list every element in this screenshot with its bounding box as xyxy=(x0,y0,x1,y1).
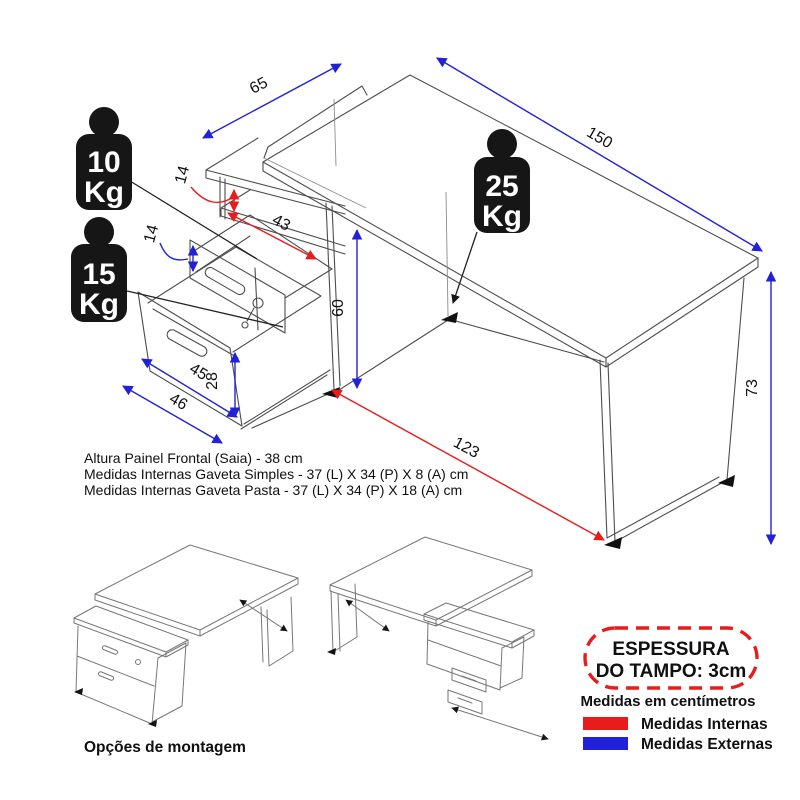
drawer-handle xyxy=(165,328,208,358)
mount-direction-arrow xyxy=(346,600,389,631)
dim-top-depth: 65 xyxy=(247,74,271,97)
right-side-panel xyxy=(600,278,744,542)
note-file-drawer-internal: Medidas Internas Gaveta Pasta - 37 (L) X… xyxy=(84,482,462,498)
internal-measures-label: Medidas Internas xyxy=(641,716,768,733)
key-lock xyxy=(136,660,141,665)
dim-line-top-depth xyxy=(203,64,341,138)
drawer-file xyxy=(138,247,330,429)
top-thickness-line1: ESPESSURA xyxy=(612,639,729,660)
diagram-canvas: 65 150 14 43 14 60 73 28 45 46 123 10 Kg… xyxy=(0,0,800,800)
top-thickness-line2: DO TAMPO: 3cm xyxy=(596,661,747,682)
drawer-pedestal xyxy=(206,138,604,428)
dim-pedestal-width: 46 xyxy=(166,390,190,414)
drawer-simple xyxy=(190,215,332,333)
drawer-handle xyxy=(203,266,246,297)
external-color-swatch xyxy=(583,737,628,750)
measurement-notes: Altura Painel Frontal (Saia) - 38 cm Med… xyxy=(84,450,468,498)
weight-unit: Kg xyxy=(482,200,522,233)
dim-niche-height: 14 xyxy=(172,164,193,186)
weight-unit: Kg xyxy=(79,288,119,321)
legend: ESPESSURA DO TAMPO: 3cm Medidas em centí… xyxy=(580,628,772,753)
weight-value: 15 xyxy=(82,258,115,291)
note-front-panel-height: Altura Painel Frontal (Saia) - 38 cm xyxy=(84,450,303,466)
key-lock xyxy=(242,298,263,328)
weight-unit: Kg xyxy=(84,176,124,209)
dim-line-knee-clearance xyxy=(332,390,604,540)
desk-feet xyxy=(322,312,735,549)
dim-leader-drawer-front-height xyxy=(160,243,188,260)
dim-niche-depth: 43 xyxy=(269,211,293,234)
dim-desk-height: 73 xyxy=(744,379,761,397)
dim-leader-niche-height xyxy=(191,187,230,202)
weight-value: 25 xyxy=(485,170,518,203)
units-note: Medidas em centímetros xyxy=(580,693,755,710)
dimension-labels: 65 150 14 43 14 60 73 28 45 46 123 xyxy=(141,74,761,462)
furniture-dimension-diagram: 65 150 14 43 14 60 73 28 45 46 123 10 Kg… xyxy=(0,0,800,800)
dim-drawer-front-height: 14 xyxy=(141,223,162,245)
weight-leader-line xyxy=(453,232,477,303)
weight-leader-line xyxy=(127,291,283,327)
dim-pedestal-height: 60 xyxy=(330,299,347,317)
assembly-options-label: Opções de montagem xyxy=(84,739,246,756)
mount-direction-arrow xyxy=(452,708,548,739)
external-measures-label: Medidas Externas xyxy=(641,736,773,753)
mount-direction-arrow xyxy=(240,600,287,631)
note-simple-drawer-internal: Medidas Internas Gaveta Simples - 37 (L)… xyxy=(84,466,468,482)
assembly-option-left xyxy=(74,545,298,727)
assembly-option-right xyxy=(327,537,548,739)
weight-badge-15kg: 15 Kg xyxy=(71,217,283,327)
weight-value: 10 xyxy=(87,146,120,179)
internal-color-swatch xyxy=(583,717,628,730)
